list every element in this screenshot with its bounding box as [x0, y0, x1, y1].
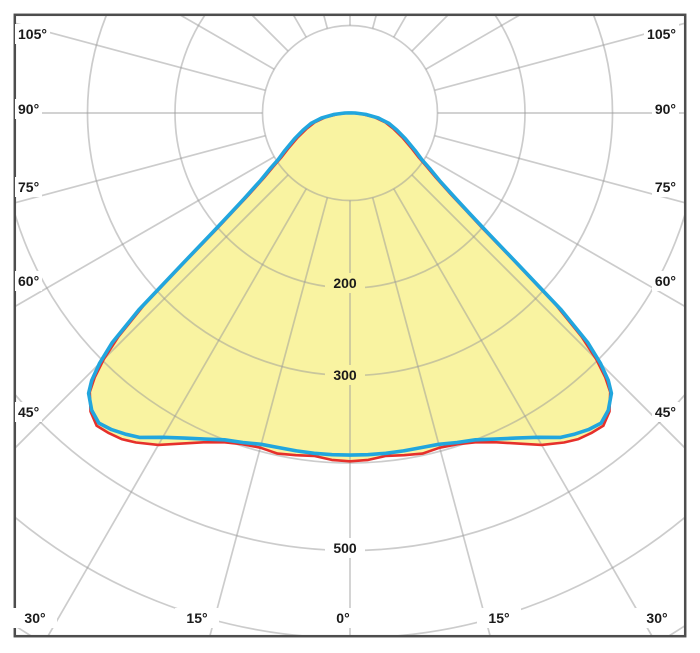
angle-label-right-105: 105° — [644, 24, 679, 44]
angle-label-bottom-15l: 15° — [175, 608, 219, 628]
angle-label-left-60: 60° — [15, 271, 42, 291]
angle-label-right-90: 90° — [652, 99, 679, 119]
photometric-polar-diagram: 105° 90° 75° 60° 45° 105° 90° 75° 60° 45… — [0, 0, 700, 653]
angle-label-left-45: 45° — [15, 402, 42, 422]
angle-label-bottom-0: 0° — [321, 608, 365, 628]
angle-label-right-75: 75° — [652, 177, 679, 197]
angle-label-bottom-15r: 15° — [477, 608, 521, 628]
angle-label-right-45: 45° — [652, 402, 679, 422]
radial-label-300: 300 — [325, 365, 365, 385]
angle-label-left-90: 90° — [15, 99, 42, 119]
angle-label-bottom-30l: 30° — [13, 608, 57, 628]
angle-label-bottom-30r: 30° — [635, 608, 679, 628]
radial-label-500: 500 — [325, 538, 365, 558]
angle-label-left-105: 105° — [15, 24, 50, 44]
angle-label-left-75: 75° — [15, 177, 42, 197]
angle-label-right-60: 60° — [652, 271, 679, 291]
radial-label-200: 200 — [325, 273, 365, 293]
